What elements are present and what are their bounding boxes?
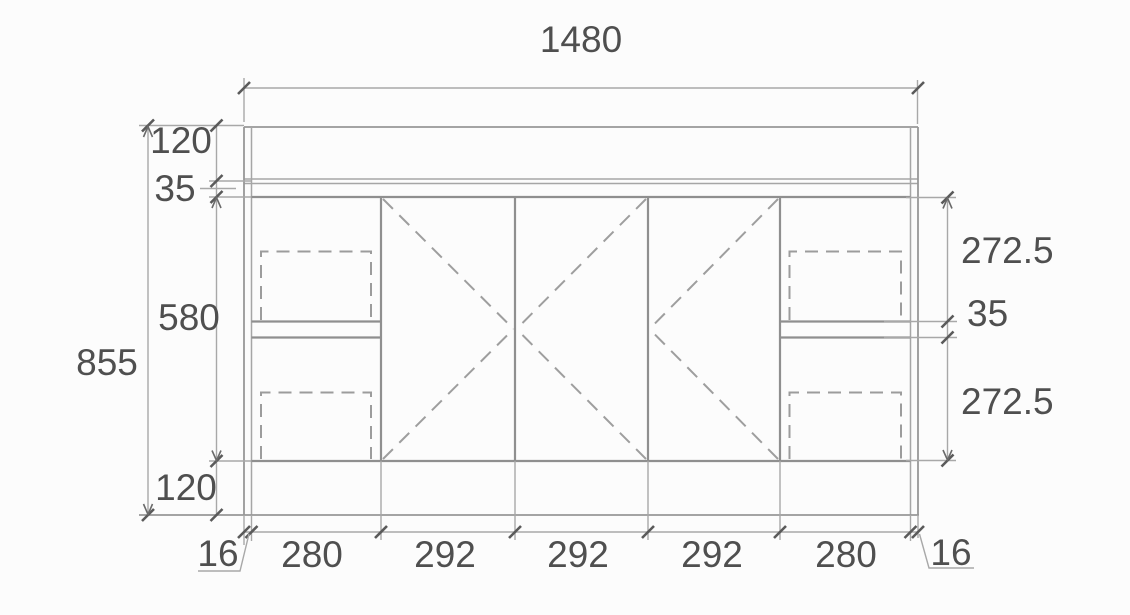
dim-label-door1-width: 292 bbox=[414, 534, 476, 575]
dim-label-total-width: 1480 bbox=[540, 19, 622, 60]
dim-label-right-gap: 35 bbox=[967, 293, 1008, 334]
dim-label-right-lower: 272.5 bbox=[961, 381, 1054, 422]
technical-drawing-canvas: 1480 855 120 35 580 120 bbox=[0, 0, 1130, 615]
dim-label-side-left: 16 bbox=[197, 533, 238, 574]
dim-label-top-band: 120 bbox=[150, 120, 212, 161]
dim-label-plinth: 120 bbox=[155, 467, 217, 508]
dim-label-door-region: 580 bbox=[158, 297, 220, 338]
dim-label-door2-width: 292 bbox=[547, 534, 609, 575]
dim-label-door3-width: 292 bbox=[681, 534, 743, 575]
dim-label-right-drawer-width: 280 bbox=[815, 534, 877, 575]
dim-label-left-gap: 35 bbox=[154, 168, 195, 209]
dim-label-total-height: 855 bbox=[76, 342, 138, 383]
dim-label-left-drawer-width: 280 bbox=[281, 534, 343, 575]
dim-label-side-right: 16 bbox=[930, 532, 971, 573]
dim-label-right-upper: 272.5 bbox=[961, 230, 1054, 271]
cabinet-elevation-drawing: 1480 855 120 35 580 120 bbox=[0, 0, 1130, 615]
